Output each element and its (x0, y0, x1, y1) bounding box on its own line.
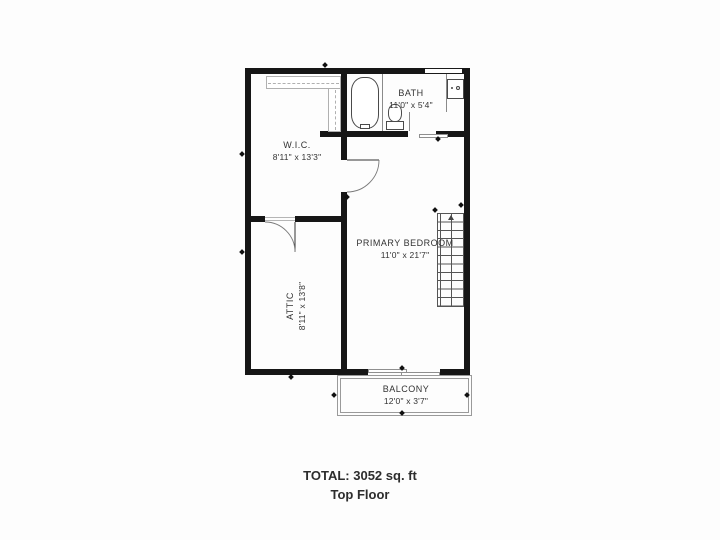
floor-name-text: Top Floor (260, 487, 460, 502)
attic-door-arc (265, 222, 295, 252)
primary-bedroom-label: PRIMARY BEDROOM 11'0" x 21'7" (356, 238, 453, 260)
wic-door-arc (347, 160, 379, 192)
attic-name: ATTIC (285, 282, 295, 331)
wic-dims: 8'11" x 13'3" (273, 152, 322, 162)
total-area-text: TOTAL: 3052 sq. ft (260, 468, 460, 483)
attic-label: ATTIC 8'11" x 13'8" (285, 282, 307, 331)
bath-label: BATH 11'0" x 5'4" (389, 88, 433, 110)
wic-label: W.I.C. 8'11" x 13'3" (273, 140, 322, 162)
floorplan-canvas: W.I.C. 8'11" x 13'3" BATH 11'0" x 5'4" P… (0, 0, 720, 540)
wic-name: W.I.C. (273, 140, 322, 150)
balcony-name: BALCONY (383, 384, 430, 394)
bath-dims: 11'0" x 5'4" (389, 100, 433, 110)
primary-bedroom-name: PRIMARY BEDROOM (356, 238, 453, 248)
primary-bedroom-dims: 11'0" x 21'7" (356, 250, 453, 260)
balcony-dims: 12'0" x 3'7" (383, 396, 430, 406)
bath-name: BATH (389, 88, 433, 98)
plan-summary: TOTAL: 3052 sq. ft Top Floor (260, 468, 460, 502)
balcony-label: BALCONY 12'0" x 3'7" (383, 384, 430, 406)
attic-dims: 8'11" x 13'8" (297, 282, 307, 331)
door-swing-overlay (0, 0, 720, 540)
